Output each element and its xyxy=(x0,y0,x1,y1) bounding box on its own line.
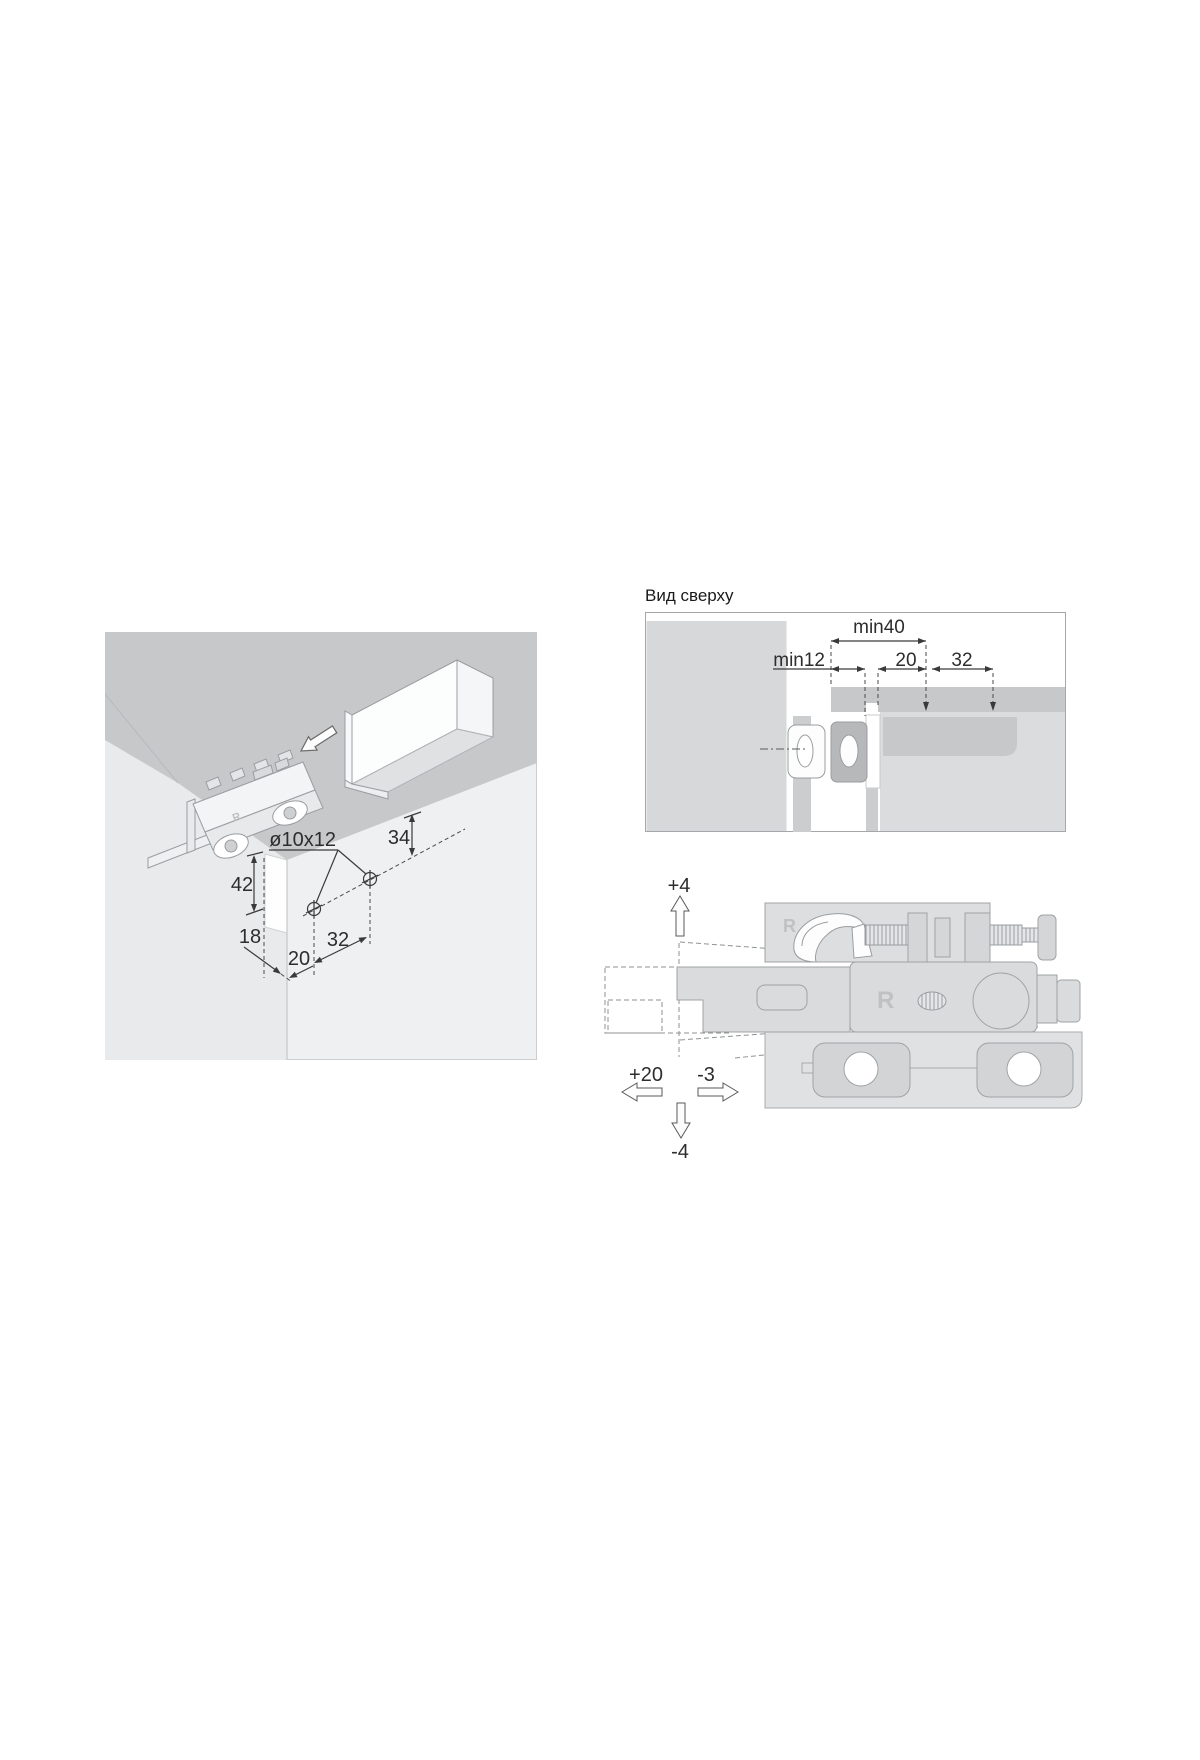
hanger-housing: R xyxy=(677,962,1080,1032)
dim-32-top-label: 32 xyxy=(951,650,972,671)
top-view-panel: min40 min12 20 32 xyxy=(645,612,1066,832)
cam-wheel xyxy=(973,973,1029,1029)
bracket-top-r-marking: R xyxy=(783,916,796,936)
top-bracket-assembly: R xyxy=(765,903,1056,962)
dim-20-label: 20 xyxy=(288,948,310,970)
side-panel-front-face xyxy=(265,854,287,933)
isometric-view-panel: R 34 42 ø10x12 xyxy=(105,632,537,1060)
hole-size-label: ø10x12 xyxy=(269,829,336,851)
dim-18-label: 18 xyxy=(239,926,261,948)
down-arrow-icon xyxy=(672,1103,690,1138)
adjust-down-label: -4 xyxy=(671,1141,689,1163)
wall-block xyxy=(647,621,787,831)
dim-34-label: 34 xyxy=(388,827,410,849)
screw-end-cap xyxy=(1038,915,1056,960)
dim-32-label: 32 xyxy=(327,929,349,951)
cabinet-top-block xyxy=(883,717,1017,756)
adjust-up-label: +4 xyxy=(668,875,691,897)
side-view-panel: R R +4 +20 -3 -4 xyxy=(580,850,1110,1170)
housing-r-marking: R xyxy=(877,987,894,1014)
base-plate xyxy=(765,1032,1082,1108)
hatched-oval xyxy=(918,992,946,1010)
side-panel-strip-lower xyxy=(866,788,878,831)
dim-20-top-label: 20 xyxy=(895,650,916,671)
screw-thread-2 xyxy=(990,925,1022,945)
dim-min40-label: min40 xyxy=(853,617,905,638)
screw-thread-1 xyxy=(865,925,908,945)
panel-white-strip xyxy=(866,715,880,788)
dim-42-label: 42 xyxy=(231,874,253,896)
adjust-left-label: +20 xyxy=(629,1064,663,1086)
rail-notch xyxy=(866,703,878,713)
adjust-right-label: -3 xyxy=(697,1064,715,1086)
dim-min12-label: min12 xyxy=(773,650,825,671)
up-arrow-icon xyxy=(671,896,689,936)
top-view-title: Вид сверху xyxy=(645,586,734,606)
